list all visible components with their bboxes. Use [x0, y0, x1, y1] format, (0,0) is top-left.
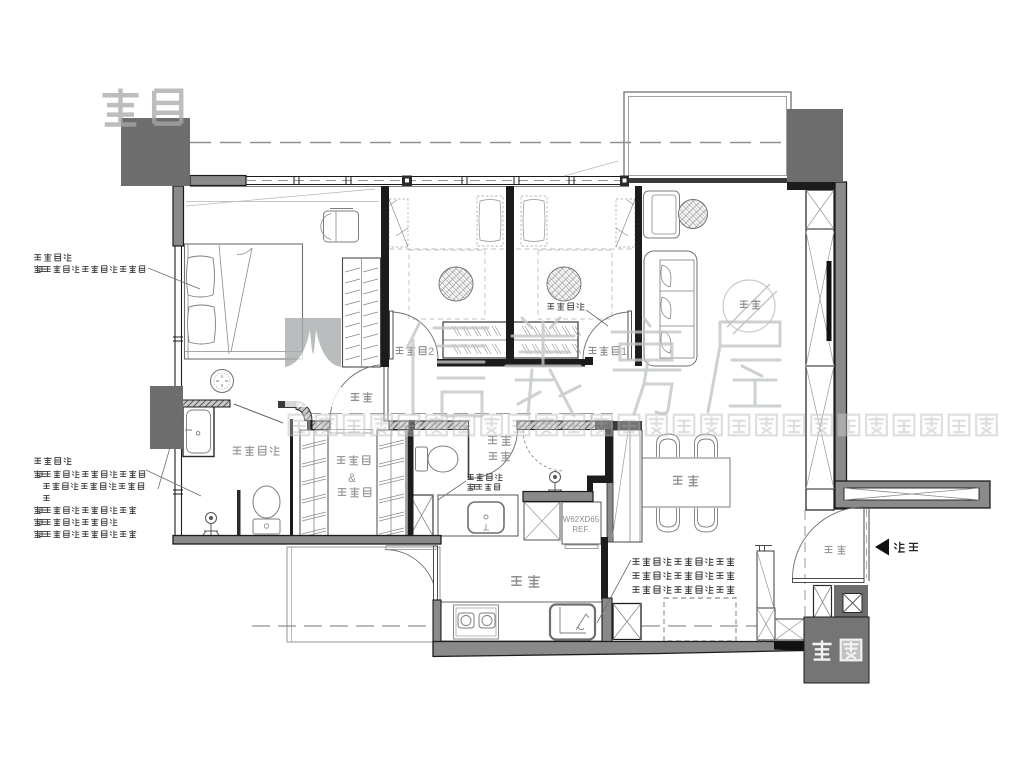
svg-text:1: 1 [621, 346, 627, 358]
svg-text:W62XD65: W62XD65 [563, 515, 600, 524]
svg-text:REF.: REF. [572, 525, 589, 534]
svg-text:&: & [348, 471, 356, 485]
svg-text:2: 2 [428, 346, 434, 358]
